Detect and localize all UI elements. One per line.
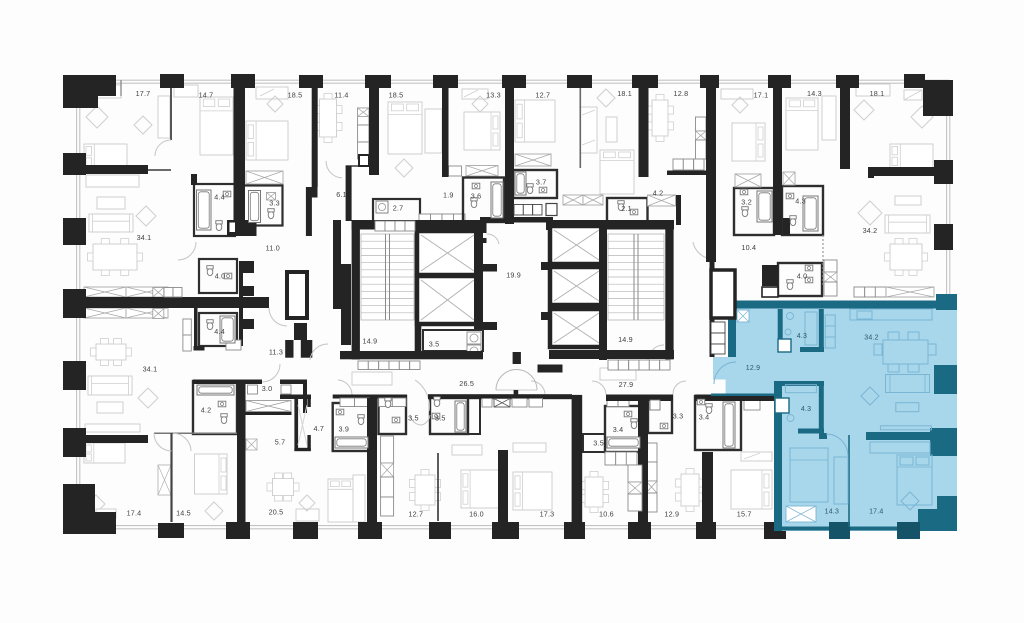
svg-text:3.4: 3.4 bbox=[613, 425, 624, 434]
svg-text:11.3: 11.3 bbox=[269, 348, 283, 357]
svg-text:12.7: 12.7 bbox=[408, 510, 423, 519]
svg-text:34.2: 34.2 bbox=[864, 335, 878, 342]
svg-text:17.7: 17.7 bbox=[136, 89, 151, 98]
svg-text:26.5: 26.5 bbox=[459, 379, 474, 388]
svg-text:12.8: 12.8 bbox=[674, 89, 689, 98]
svg-text:10.4: 10.4 bbox=[741, 243, 756, 252]
svg-text:15.7: 15.7 bbox=[737, 510, 752, 519]
svg-text:14.3: 14.3 bbox=[825, 509, 839, 516]
svg-text:34.1: 34.1 bbox=[143, 365, 158, 374]
svg-text:18.5: 18.5 bbox=[389, 91, 404, 100]
svg-text:11.4: 11.4 bbox=[334, 91, 348, 100]
svg-text:10.6: 10.6 bbox=[599, 510, 614, 519]
svg-text:3.5: 3.5 bbox=[429, 340, 440, 349]
svg-text:12.9: 12.9 bbox=[664, 510, 679, 519]
svg-text:17.3: 17.3 bbox=[540, 510, 555, 519]
svg-text:1.9: 1.9 bbox=[443, 191, 454, 200]
svg-text:34.2: 34.2 bbox=[863, 226, 878, 235]
svg-text:4.2: 4.2 bbox=[653, 189, 664, 198]
svg-text:12.7: 12.7 bbox=[535, 91, 550, 100]
svg-text:4.0: 4.0 bbox=[797, 272, 808, 281]
svg-text:17.4: 17.4 bbox=[127, 509, 142, 518]
svg-text:3.3: 3.3 bbox=[269, 199, 280, 208]
svg-text:4.3: 4.3 bbox=[801, 406, 811, 413]
svg-text:3.6: 3.6 bbox=[471, 192, 482, 201]
svg-text:27.9: 27.9 bbox=[619, 380, 634, 389]
svg-text:14.3: 14.3 bbox=[807, 89, 822, 98]
svg-text:12.9: 12.9 bbox=[746, 365, 760, 372]
svg-text:3.5: 3.5 bbox=[593, 439, 604, 448]
svg-text:18.1: 18.1 bbox=[617, 89, 632, 98]
svg-text:4.4: 4.4 bbox=[214, 193, 225, 202]
svg-text:4.3: 4.3 bbox=[797, 333, 807, 340]
svg-text:17.1: 17.1 bbox=[754, 91, 769, 100]
svg-text:20.5: 20.5 bbox=[269, 508, 284, 517]
svg-text:11.0: 11.0 bbox=[266, 244, 280, 253]
svg-text:3.4: 3.4 bbox=[699, 413, 710, 422]
svg-text:18.5: 18.5 bbox=[288, 91, 303, 100]
svg-text:17.4: 17.4 bbox=[869, 509, 883, 516]
svg-text:4.2: 4.2 bbox=[201, 406, 212, 415]
svg-text:16.0: 16.0 bbox=[469, 510, 484, 519]
svg-text:2.7: 2.7 bbox=[393, 204, 404, 213]
svg-text:3.5: 3.5 bbox=[435, 414, 446, 423]
svg-text:14.7: 14.7 bbox=[199, 91, 214, 100]
svg-text:3.5: 3.5 bbox=[408, 414, 419, 423]
svg-text:13.3: 13.3 bbox=[486, 91, 501, 100]
svg-text:3.3: 3.3 bbox=[673, 412, 684, 421]
svg-text:14.5: 14.5 bbox=[176, 509, 191, 518]
svg-text:6.1: 6.1 bbox=[336, 190, 347, 199]
svg-text:3.2: 3.2 bbox=[741, 198, 752, 207]
svg-text:4.0: 4.0 bbox=[215, 272, 226, 281]
svg-text:3.9: 3.9 bbox=[339, 425, 350, 434]
svg-text:18.1: 18.1 bbox=[870, 89, 885, 98]
svg-text:4.4: 4.4 bbox=[214, 327, 225, 336]
svg-text:19.9: 19.9 bbox=[506, 271, 521, 280]
svg-text:14.9: 14.9 bbox=[618, 335, 633, 344]
svg-text:4.3: 4.3 bbox=[795, 197, 806, 206]
svg-text:3.7: 3.7 bbox=[536, 178, 547, 187]
svg-text:4.7: 4.7 bbox=[314, 424, 325, 433]
svg-text:2.1: 2.1 bbox=[621, 204, 632, 213]
svg-text:3.0: 3.0 bbox=[262, 384, 273, 393]
svg-text:5.7: 5.7 bbox=[275, 438, 286, 447]
svg-text:14.9: 14.9 bbox=[363, 337, 378, 346]
svg-text:34.1: 34.1 bbox=[137, 233, 152, 242]
